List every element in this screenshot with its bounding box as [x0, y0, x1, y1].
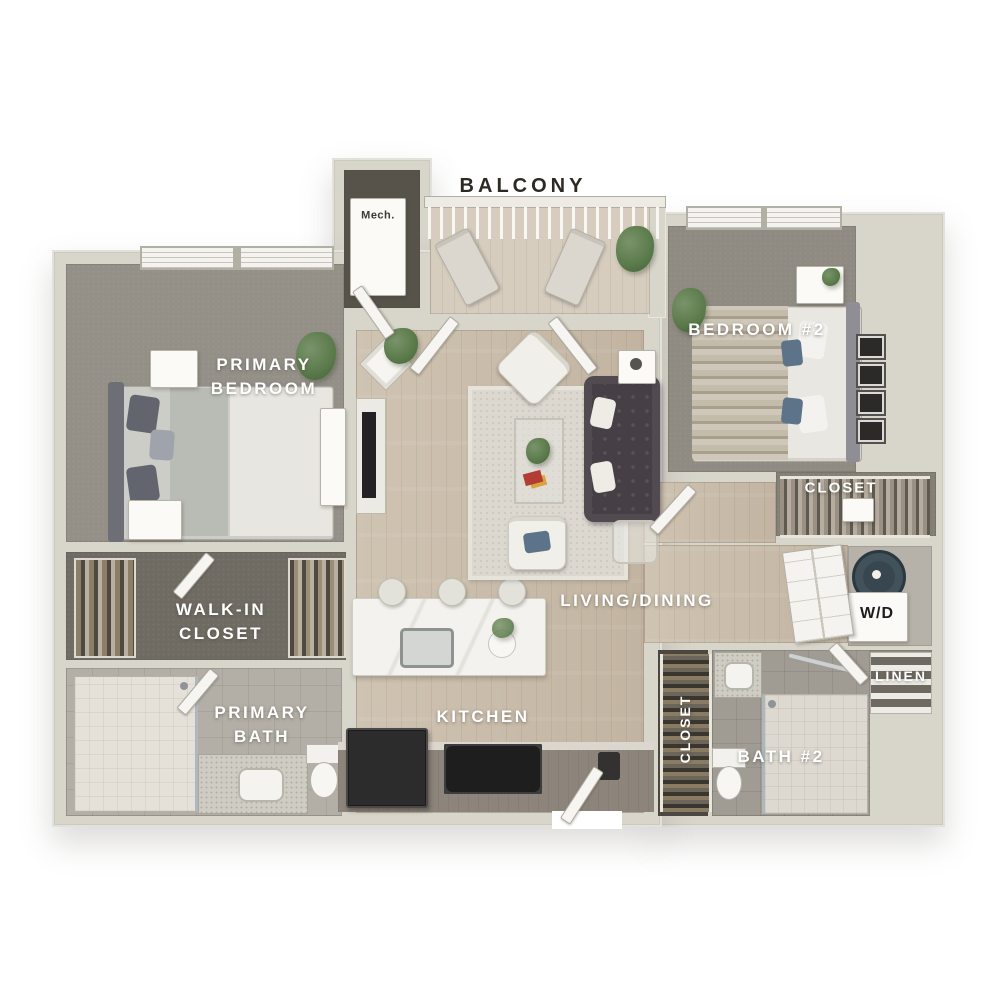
wd-label: W/D: [860, 603, 894, 625]
tv-screen: [362, 412, 376, 498]
primary-bed-pillow-2: [126, 464, 161, 504]
side-table-lamp: [630, 358, 642, 370]
primary-shower: [74, 676, 198, 812]
bedroom2-wall-frame-2: [856, 362, 886, 388]
bedroom2-label: BEDROOM #2: [688, 318, 825, 342]
wd-closet-doors: [782, 544, 854, 643]
bedroom2-blue-pillow-1: [781, 339, 804, 367]
bedroom2-blue-pillow-2: [781, 397, 804, 425]
living-dining-label: LIVING/DINING: [560, 589, 713, 613]
primary-nightstand-top: [150, 350, 198, 388]
kitchen-sink: [400, 628, 454, 668]
bedroom2-wall-frame-4: [856, 418, 886, 444]
hall-closet-label: CLOSET: [676, 695, 696, 764]
primary-bedroom-label: PRIMARY BEDROOM: [211, 353, 317, 401]
bath2-shower-head: [768, 700, 776, 708]
bath2-label: BATH #2: [737, 745, 824, 769]
primary-vanity-sink: [238, 768, 284, 802]
washer-door-dot: [872, 570, 881, 579]
primary-bed-duvet: [228, 388, 332, 536]
island-stool-3: [498, 578, 526, 606]
kitchen-label: KITCHEN: [436, 705, 529, 729]
bedroom2-window: [686, 206, 842, 230]
bedroom2-closet-box: [842, 498, 874, 522]
stove-cooktop: [444, 744, 542, 794]
balcony-label: BALCONY: [460, 172, 587, 200]
walkin-rack-left: [74, 558, 136, 658]
primary-bath-label: PRIMARY BATH: [214, 701, 309, 749]
primary-bed-pillow-3: [149, 429, 175, 461]
walkin-closet-label: WALK-IN CLOSET: [176, 598, 266, 646]
bath2-sink: [724, 662, 754, 690]
primary-toilet-tank: [306, 744, 342, 764]
primary-dresser: [320, 408, 346, 506]
bedroom2-wall-frame-1: [856, 334, 886, 360]
island-stool-2: [438, 578, 466, 606]
primary-bedroom-window: [140, 246, 334, 270]
walkin-rack-right: [288, 558, 346, 658]
island-stool-1: [378, 578, 406, 606]
primary-shower-head: [180, 682, 188, 690]
primary-bed-pillow-1: [126, 394, 161, 434]
bedroom2-closet-label: CLOSET: [805, 478, 878, 499]
armchair-blue-pillow: [523, 530, 552, 553]
mech-label: Mech.: [361, 208, 395, 223]
primary-toilet-bowl: [310, 762, 338, 798]
primary-bed-headboard: [108, 382, 124, 542]
primary-nightstand-bottom: [128, 500, 182, 540]
refrigerator: [346, 728, 428, 808]
bedroom2-wall-frame-3: [856, 390, 886, 416]
bath2-toilet-bowl: [716, 766, 742, 800]
floor-plan-canvas: BALCONY Mech. PRIMARY BEDROOM BEDROOM #2…: [0, 0, 1000, 1000]
linen-label: LINEN: [875, 667, 927, 687]
